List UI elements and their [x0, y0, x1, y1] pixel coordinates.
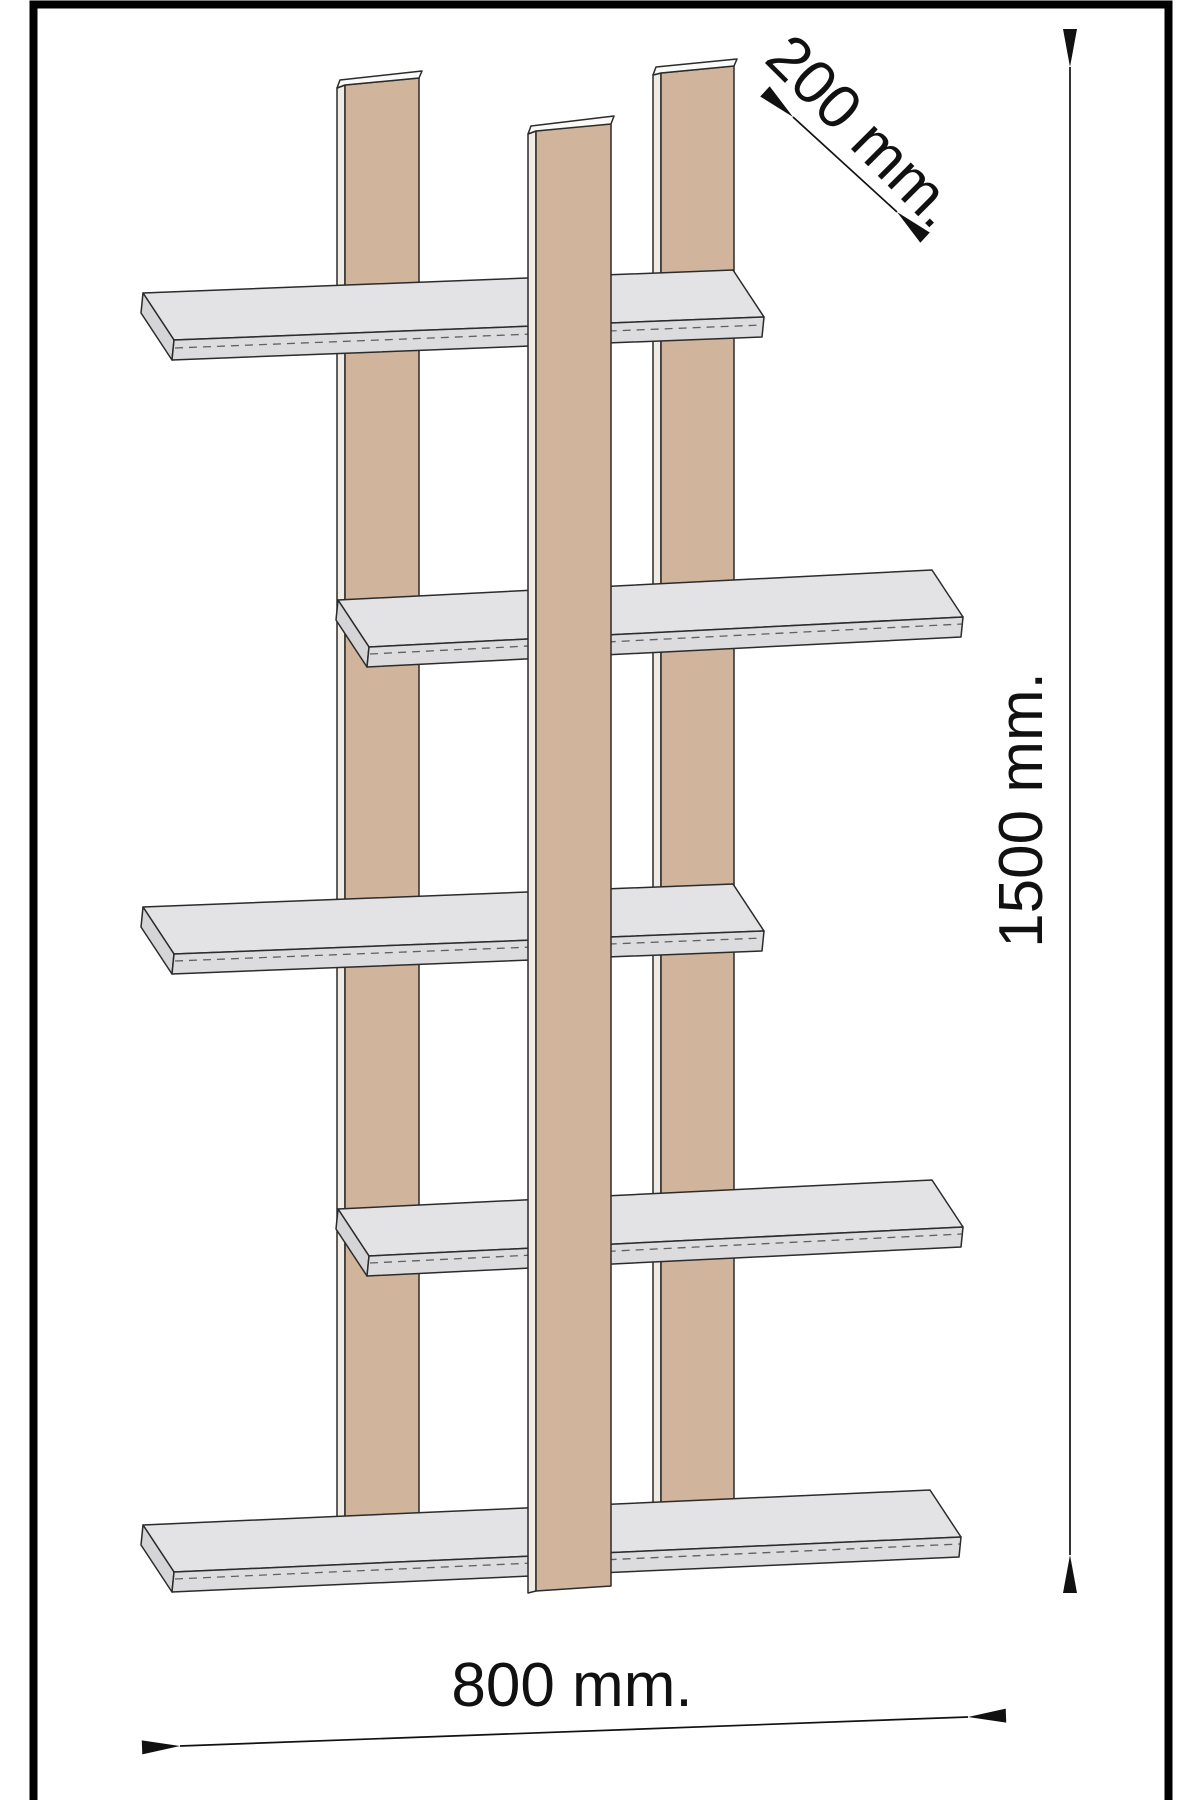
depth-dimension-label: 200 mm.: [753, 22, 972, 241]
middle-panel-front-face: [536, 123, 611, 1591]
drawing-canvas: 200 mm. 1500 mm. 800 mm.: [0, 0, 1199, 1800]
shelf-technical-drawing: 200 mm. 1500 mm. 800 mm.: [0, 0, 1199, 1800]
middle-panel-side-face: [528, 131, 536, 1593]
width-dimension-label: 800 mm.: [451, 1651, 692, 1720]
depth-dimension: 200 mm.: [753, 22, 972, 241]
shelf-2: [336, 570, 963, 667]
middle-panel: [528, 116, 614, 1593]
width-dimension: 800 mm.: [180, 1651, 968, 1746]
width-dimension-arrow: [180, 1717, 968, 1746]
shelf-4: [336, 1180, 963, 1276]
height-dimension-label: 1500 mm.: [987, 672, 1056, 948]
height-dimension: 1500 mm.: [987, 67, 1070, 1555]
